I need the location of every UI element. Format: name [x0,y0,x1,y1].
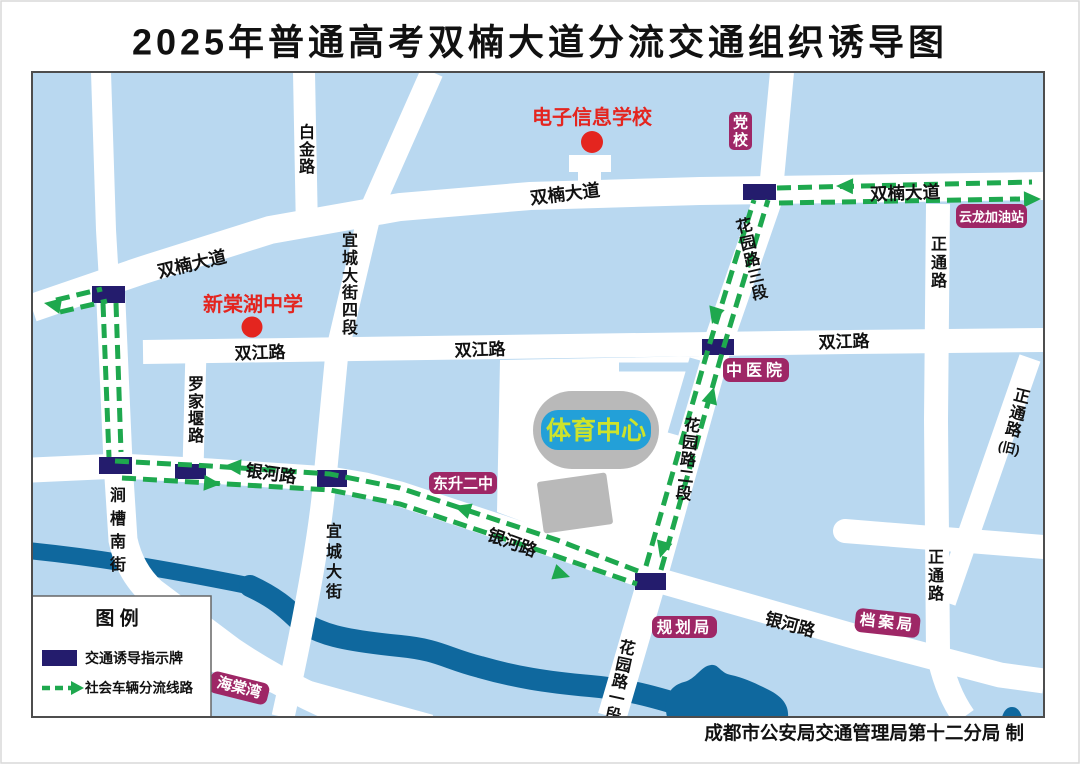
svg-text:双楠大道: 双楠大道 [870,182,941,204]
svg-text:正通路: 正通路 [928,550,945,603]
svg-text:双江路: 双江路 [818,331,871,353]
svg-text:规划局: 规划局 [657,618,713,637]
svg-text:东升二中: 东升二中 [433,475,493,493]
svg-text:新棠湖中学: 新棠湖中学 [203,292,303,316]
svg-text:社会车辆分流线路: 社会车辆分流线路 [84,680,193,696]
svg-text:正通路: 正通路 [931,237,948,290]
svg-text:双江路: 双江路 [454,339,507,361]
svg-text:中医院: 中医院 [726,361,786,380]
svg-text:白金路: 白金路 [298,123,316,176]
svg-text:成都市公安局交通管理局第十二分局 制: 成都市公安局交通管理局第十二分局 制 [704,723,1024,744]
svg-text:交通诱导指示牌: 交通诱导指示牌 [85,650,183,666]
svg-text:云龙加油站: 云龙加油站 [959,210,1024,225]
svg-text:罗家堰路: 罗家堰路 [188,376,205,445]
svg-text:电子信息学校: 电子信息学校 [532,105,653,129]
svg-text:宜城大街四段: 宜城大街四段 [341,231,359,337]
svg-text:体育中心: 体育中心 [546,416,646,445]
svg-text:2025年普通高考双楠大道分流交通组织诱导图: 2025年普通高考双楠大道分流交通组织诱导图 [132,22,948,63]
svg-text:党校: 党校 [733,114,749,149]
svg-text:双江路: 双江路 [234,342,287,364]
svg-text:图 例: 图 例 [95,607,138,630]
